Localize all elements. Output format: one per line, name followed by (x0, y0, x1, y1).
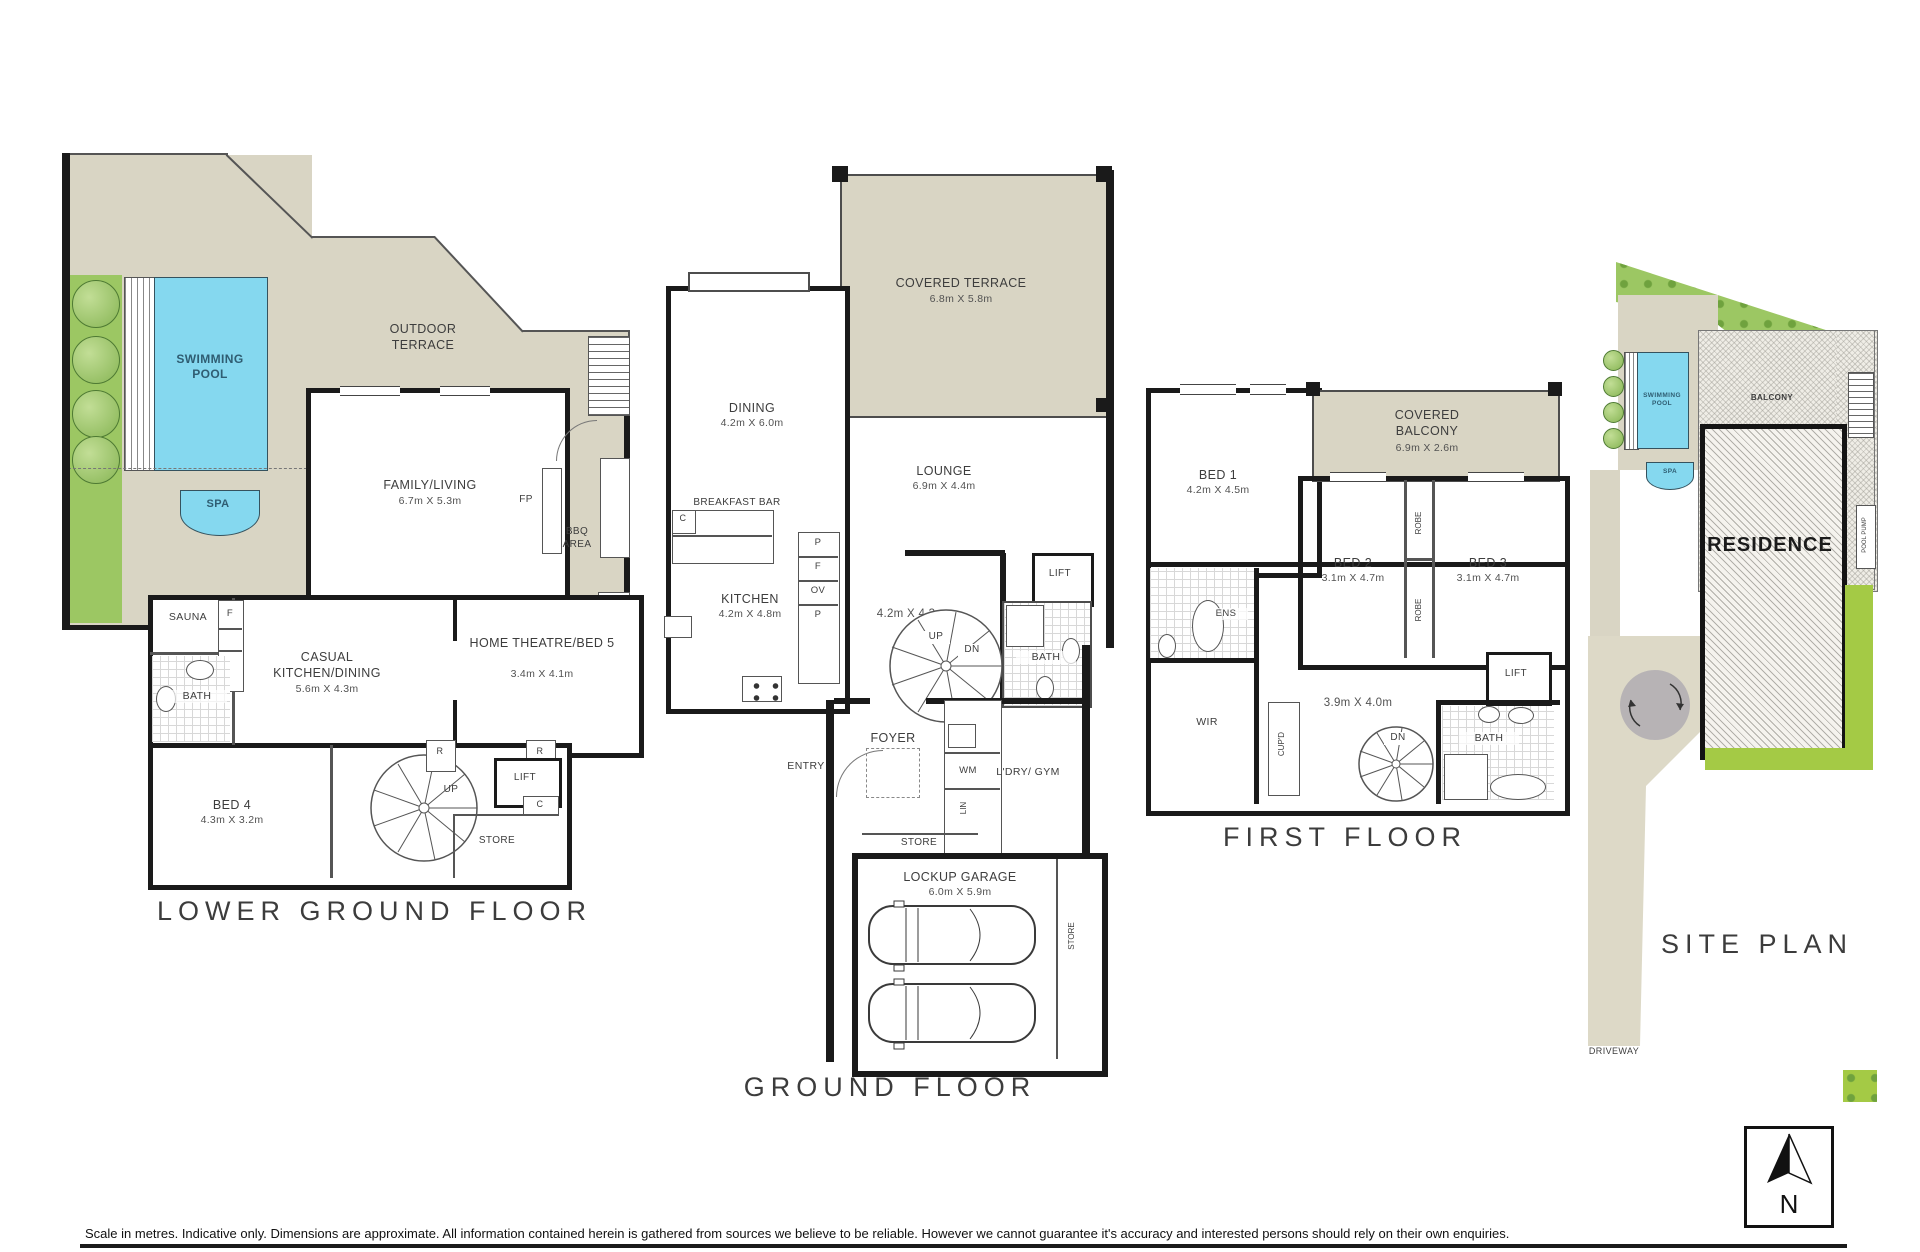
fridge-label: F (222, 608, 238, 620)
bar-line (672, 535, 772, 537)
wall (453, 700, 457, 743)
balcony-label: COVERED BALCONY (1367, 408, 1487, 439)
entry-label: ENTRY (766, 760, 846, 773)
svg-text:N: N (1780, 1189, 1799, 1219)
store-label: STORE (467, 835, 527, 848)
washing-machine (948, 724, 976, 748)
casual-dim: 5.6m X 4.3m (247, 683, 407, 695)
laundry-label: L'DRY/ GYM (993, 766, 1063, 779)
bed3-dim: 3.1m X 4.7m (1438, 572, 1538, 584)
driveway-label: DRIVEWAY (1574, 1046, 1654, 1057)
family-label: FAMILY/LIVING (350, 478, 510, 494)
window (1330, 472, 1386, 482)
lower-ground-title: LOWER GROUND FLOOR (157, 896, 557, 927)
fireplace-label: FP (512, 494, 540, 507)
wir-label: WIR (1177, 716, 1237, 729)
casual-label: CASUAL KITCHEN/DINING (247, 650, 407, 681)
exterior-stair (588, 336, 630, 416)
turnaround-arrows-icon (1620, 670, 1690, 740)
shower (1006, 605, 1044, 647)
spa (180, 490, 260, 536)
wall (1146, 658, 1258, 663)
site-side-path (1590, 470, 1620, 660)
wall (1404, 558, 1434, 561)
robe-label: R (534, 746, 546, 757)
wall (1436, 702, 1441, 804)
floorplan-sheet: SWIMMING POOL SPA OUTDOOR TERRACE FAMILY… (0, 0, 1920, 1252)
pantry-label: P (808, 609, 828, 621)
bed1-dim: 4.2m X 4.5m (1168, 484, 1268, 496)
site-residence (1700, 424, 1847, 760)
cupboard-label: C (534, 799, 546, 810)
bed3-label: BED 3 (1438, 556, 1538, 572)
store-label: STORE (889, 837, 949, 850)
robe-label: ROBE (1415, 585, 1423, 635)
first-hall-dim: 3.9m X 4.0m (1308, 697, 1408, 709)
sauna-label: SAUNA (153, 611, 223, 624)
bed4-label: BED 4 (182, 798, 282, 814)
pool-fence-line (68, 468, 312, 469)
tub-icon (1490, 774, 1546, 800)
wall (1082, 645, 1090, 860)
site-lawn-right (1845, 585, 1873, 770)
north-compass: N (1744, 1126, 1834, 1228)
pool-steps (124, 277, 156, 471)
dining-label: DINING (702, 401, 802, 417)
wall (1254, 568, 1259, 804)
bed4-dim: 4.3m X 3.2m (182, 814, 282, 826)
tree-icon (72, 280, 120, 328)
spiral-stair-icon (368, 752, 480, 864)
store-side-label: STORE (1068, 904, 1076, 968)
wall (1056, 859, 1058, 1059)
garage-label: LOCKUP GARAGE (880, 870, 1040, 886)
basin-icon (1508, 707, 1534, 724)
shelf-line (798, 556, 838, 558)
pantry-label: P (808, 537, 828, 549)
bed2-label: BED 2 (1303, 556, 1403, 572)
tree-icon (72, 390, 120, 438)
wall (453, 814, 455, 878)
wall (522, 330, 630, 332)
wall (862, 833, 978, 835)
wall (330, 745, 333, 878)
dn-label: DN (1384, 732, 1412, 745)
wall (62, 153, 228, 155)
robe-label: R (434, 746, 446, 757)
disclaimer-text: Scale in metres. Indicative only. Dimens… (85, 1226, 1875, 1241)
spa-label: SPA (193, 498, 243, 512)
stove-icon (742, 676, 782, 702)
home-theatre-dim: 3.4m X 4.1m (462, 668, 622, 680)
appliance-column (798, 532, 840, 684)
kitchen-dim: 4.2m X 4.8m (700, 608, 800, 620)
shelf-line (798, 580, 838, 582)
window (1180, 384, 1236, 395)
home-theatre-label: HOME THEATRE/BED 5 (462, 636, 622, 652)
site-lawn-bottom (1705, 748, 1873, 770)
wall (834, 698, 870, 704)
toilet-icon (1478, 706, 1500, 723)
lift-label: LIFT (1038, 568, 1082, 581)
sink-icon (664, 616, 692, 638)
bath-label: BATH (1016, 651, 1076, 664)
outdoor-terrace-label: OUTDOOR TERRACE (358, 322, 488, 353)
window (440, 386, 490, 396)
first-floor-title: FIRST FLOOR (1195, 822, 1495, 853)
bath-label: BATH (167, 690, 227, 703)
post (1548, 382, 1562, 396)
lift-label: LIFT (503, 772, 547, 785)
site-plan-title: SITE PLAN (1627, 929, 1887, 960)
shelf-line (798, 604, 838, 606)
tree-icon (72, 436, 120, 484)
wall (1432, 480, 1435, 658)
window-bay (688, 272, 810, 292)
tree-icon (1603, 376, 1624, 397)
window (1250, 384, 1286, 395)
ens-label: ENS (1204, 608, 1248, 620)
post (832, 166, 848, 182)
tree-icon (1603, 428, 1624, 449)
counter-c-label: C (676, 513, 690, 524)
cupd-label: CUP'D (1278, 716, 1286, 772)
tree-icon (1603, 402, 1624, 423)
fridge-label: F (808, 561, 828, 573)
wall (453, 595, 457, 641)
wall (312, 236, 435, 238)
up-label: UP (437, 784, 465, 797)
wall (1436, 700, 1560, 705)
footer-rule (80, 1244, 1847, 1248)
wall (944, 752, 1000, 754)
covered-terrace-dim: 6.8m X 5.8m (881, 293, 1041, 305)
bath-label: BATH (1459, 732, 1519, 745)
wall (62, 153, 70, 628)
basin-icon (186, 660, 214, 680)
site-pool-label: SWIMMING POOL (1634, 392, 1690, 408)
swimming-pool-label: SWIMMING POOL (170, 352, 250, 382)
foyer-label: FOYER (853, 731, 933, 747)
wall (905, 550, 1005, 556)
post (1306, 382, 1320, 396)
up-label: UP (922, 631, 950, 644)
bbq-counter (600, 458, 630, 558)
breakfast-bar-label: BREAKFAST BAR (672, 497, 802, 510)
wm-label: WM (954, 765, 982, 777)
dining-dim: 4.2m X 6.0m (702, 417, 802, 429)
site-balcony-label: BALCONY (1732, 393, 1812, 403)
wall (453, 814, 559, 816)
site-pool-pump-label: POOL PUMP (1862, 507, 1868, 563)
ground-floor-title: GROUND FLOOR (690, 1072, 1090, 1103)
bed1-label: BED 1 (1168, 468, 1268, 484)
lin-label: LIN (960, 788, 968, 828)
foyer-rug (866, 748, 920, 798)
bbq-label: BBQ AREA (552, 526, 602, 551)
north-arrow-icon: N (1747, 1129, 1831, 1225)
oven-label: OV (808, 585, 828, 597)
dn-label: DN (958, 644, 986, 657)
shower (1444, 754, 1488, 800)
kitchen-label: KITCHEN (700, 592, 800, 608)
wall (944, 788, 1000, 790)
garage-dim: 6.0m X 5.9m (880, 886, 1040, 898)
window (340, 386, 400, 396)
site-residence-label: RESIDENCE (1690, 533, 1850, 558)
family-dim: 6.7m X 5.3m (350, 495, 510, 507)
lounge-dim: 6.9m X 4.4m (884, 480, 1004, 492)
site-spa-label: SPA (1652, 468, 1688, 476)
shelf-line (218, 628, 242, 630)
car-icon (866, 978, 1042, 1050)
toilet-icon (1036, 676, 1054, 700)
tree-icon (72, 336, 120, 384)
balcony-dim: 6.9m X 2.6m (1367, 442, 1487, 454)
car-icon (866, 900, 1042, 972)
tree-icon (1603, 350, 1624, 371)
site-lawn-patch (1843, 1070, 1877, 1102)
lift-label: LIFT (1494, 668, 1538, 681)
bed2-dim: 3.1m X 4.7m (1303, 572, 1403, 584)
window (1468, 472, 1524, 482)
wall (826, 700, 834, 1062)
wall (1106, 170, 1114, 648)
shelf-line (218, 650, 242, 652)
wall (62, 625, 148, 630)
site-stair (1848, 372, 1874, 438)
covered-terrace-label: COVERED TERRACE (881, 276, 1041, 292)
robe-label: ROBE (1415, 498, 1423, 548)
wall (1404, 480, 1407, 658)
toilet-icon (1158, 634, 1176, 658)
lounge-label: LOUNGE (884, 464, 1004, 480)
